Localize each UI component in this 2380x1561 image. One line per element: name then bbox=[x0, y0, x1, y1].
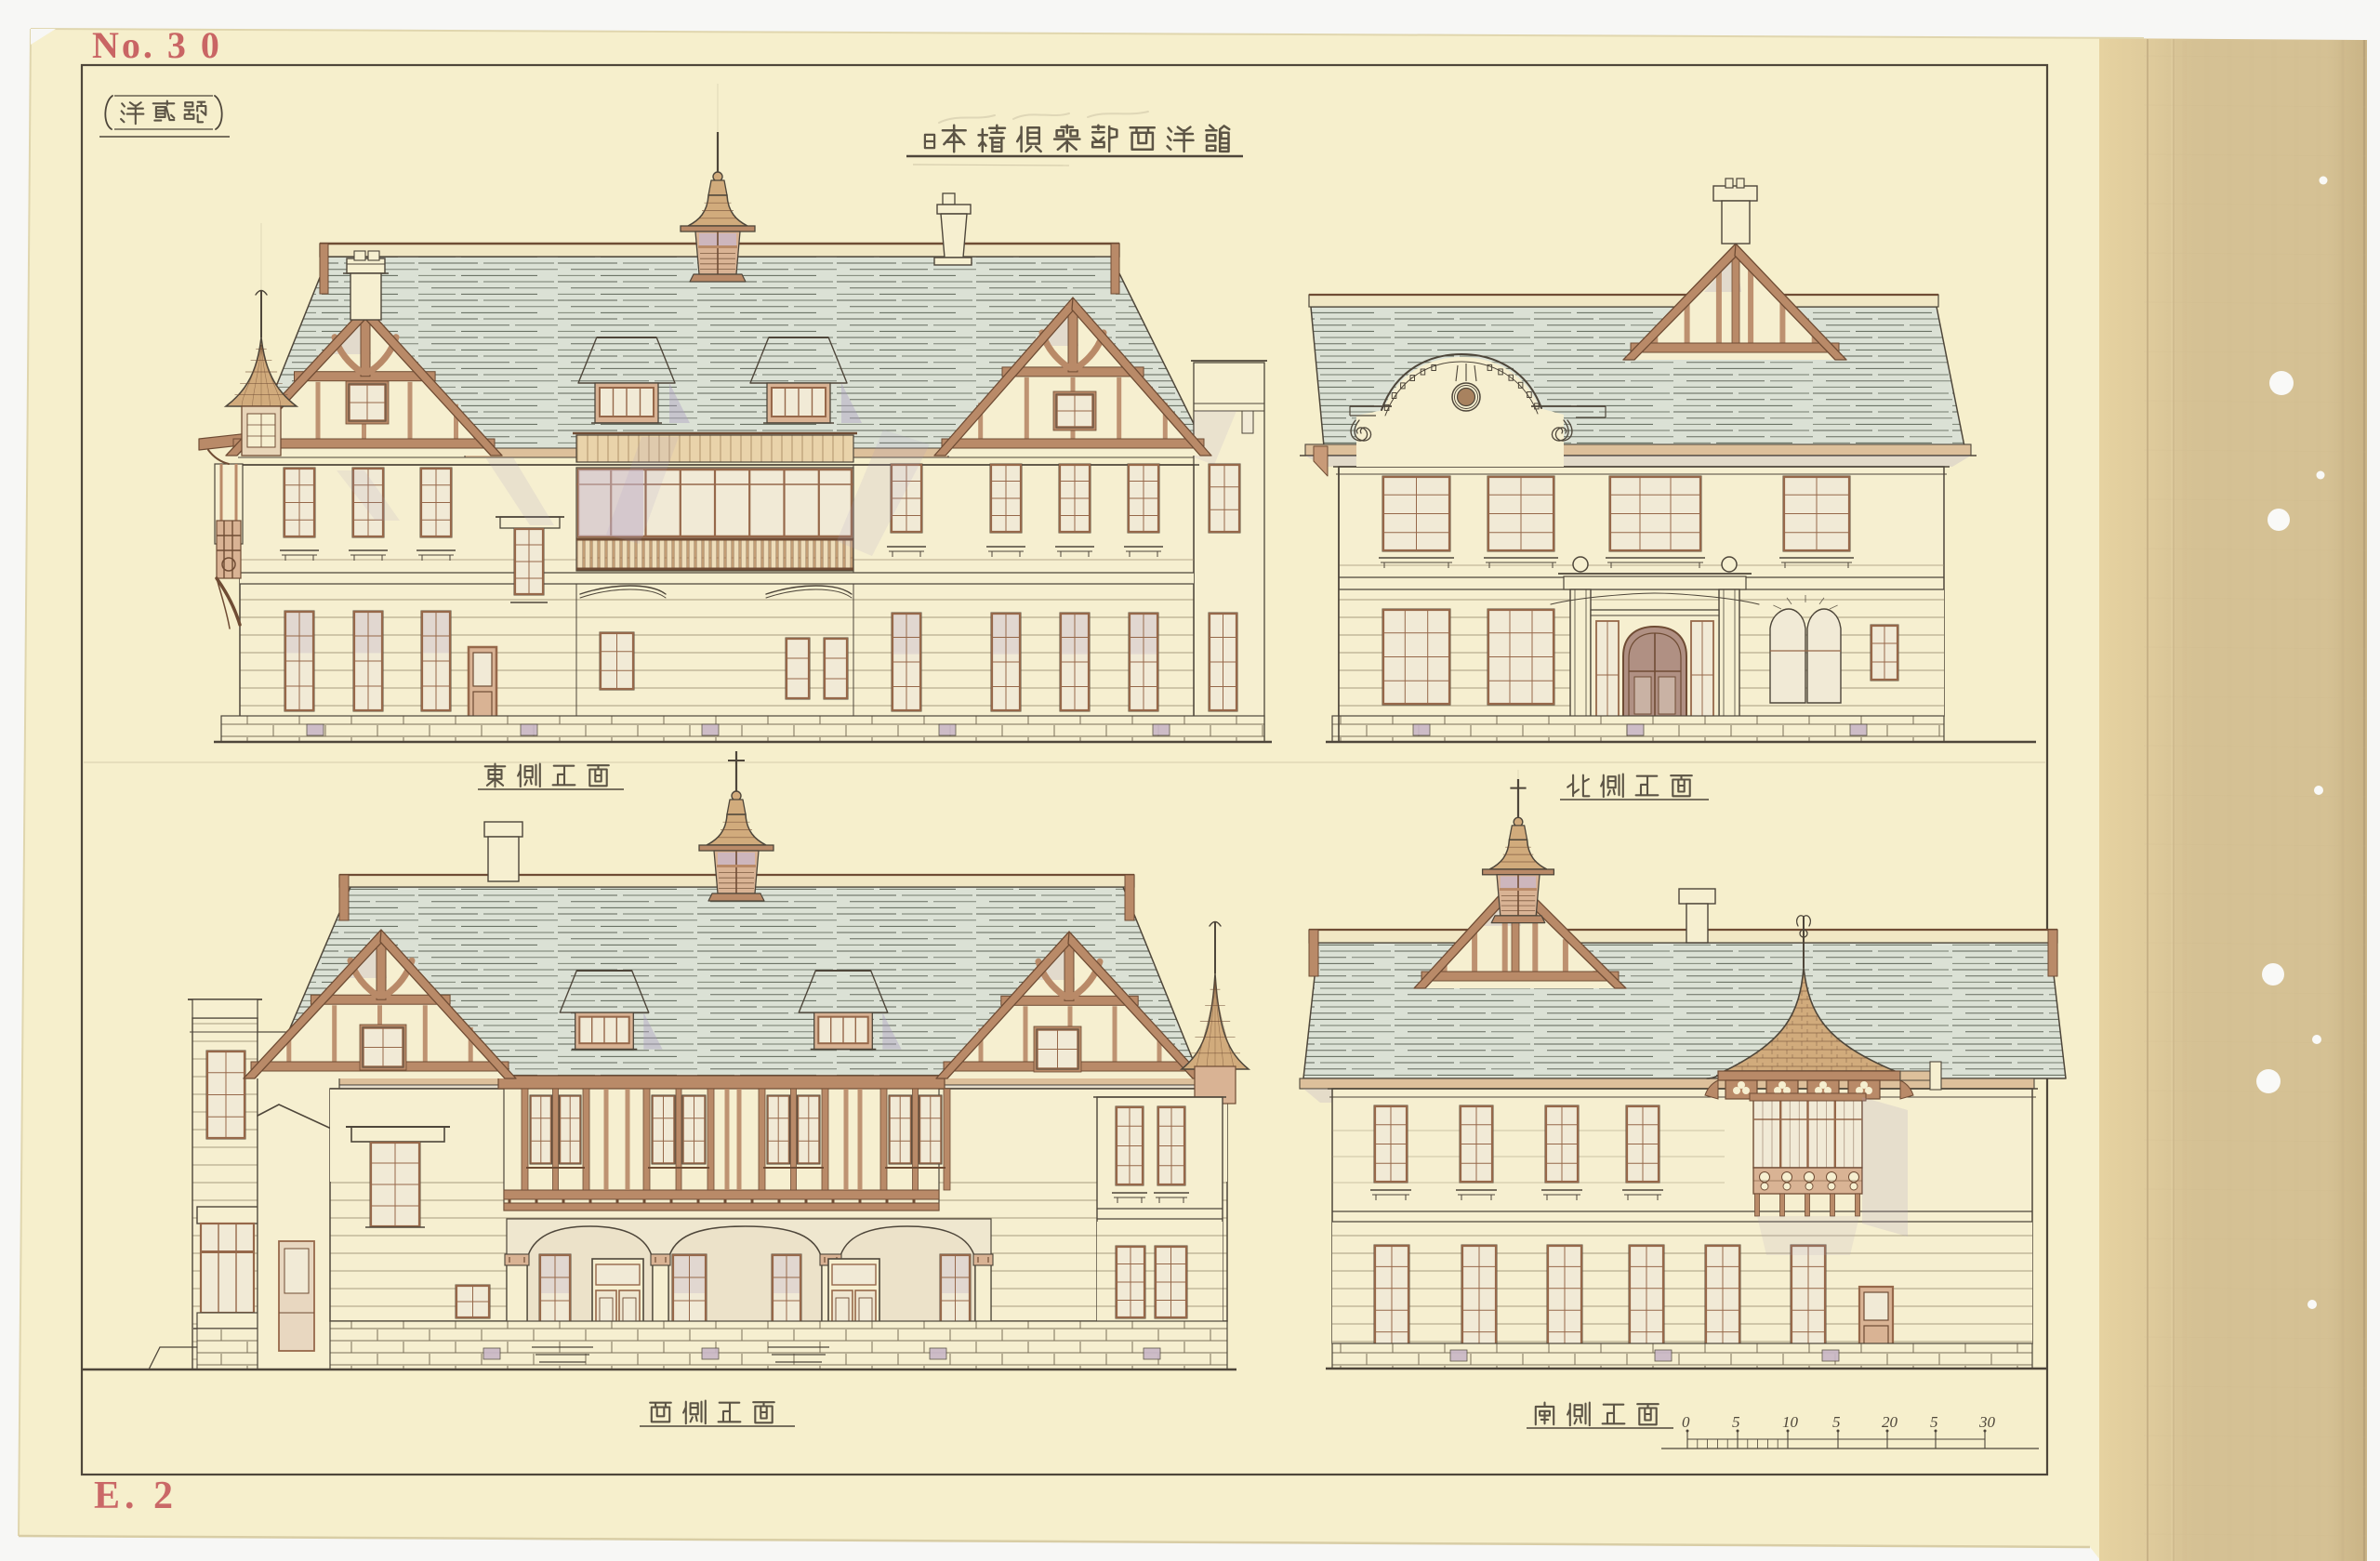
svg-text:5: 5 bbox=[1732, 1413, 1740, 1431]
svg-text:10: 10 bbox=[1782, 1413, 1799, 1431]
svg-text:5: 5 bbox=[1832, 1413, 1841, 1431]
svg-text:0: 0 bbox=[1682, 1413, 1690, 1431]
svg-text:30: 30 bbox=[1978, 1413, 1996, 1431]
svg-text:E. 2: E. 2 bbox=[94, 1475, 178, 1517]
svg-text:No. 3 0: No. 3 0 bbox=[92, 24, 222, 66]
svg-text:20: 20 bbox=[1882, 1413, 1898, 1431]
svg-text:5: 5 bbox=[1930, 1413, 1938, 1431]
